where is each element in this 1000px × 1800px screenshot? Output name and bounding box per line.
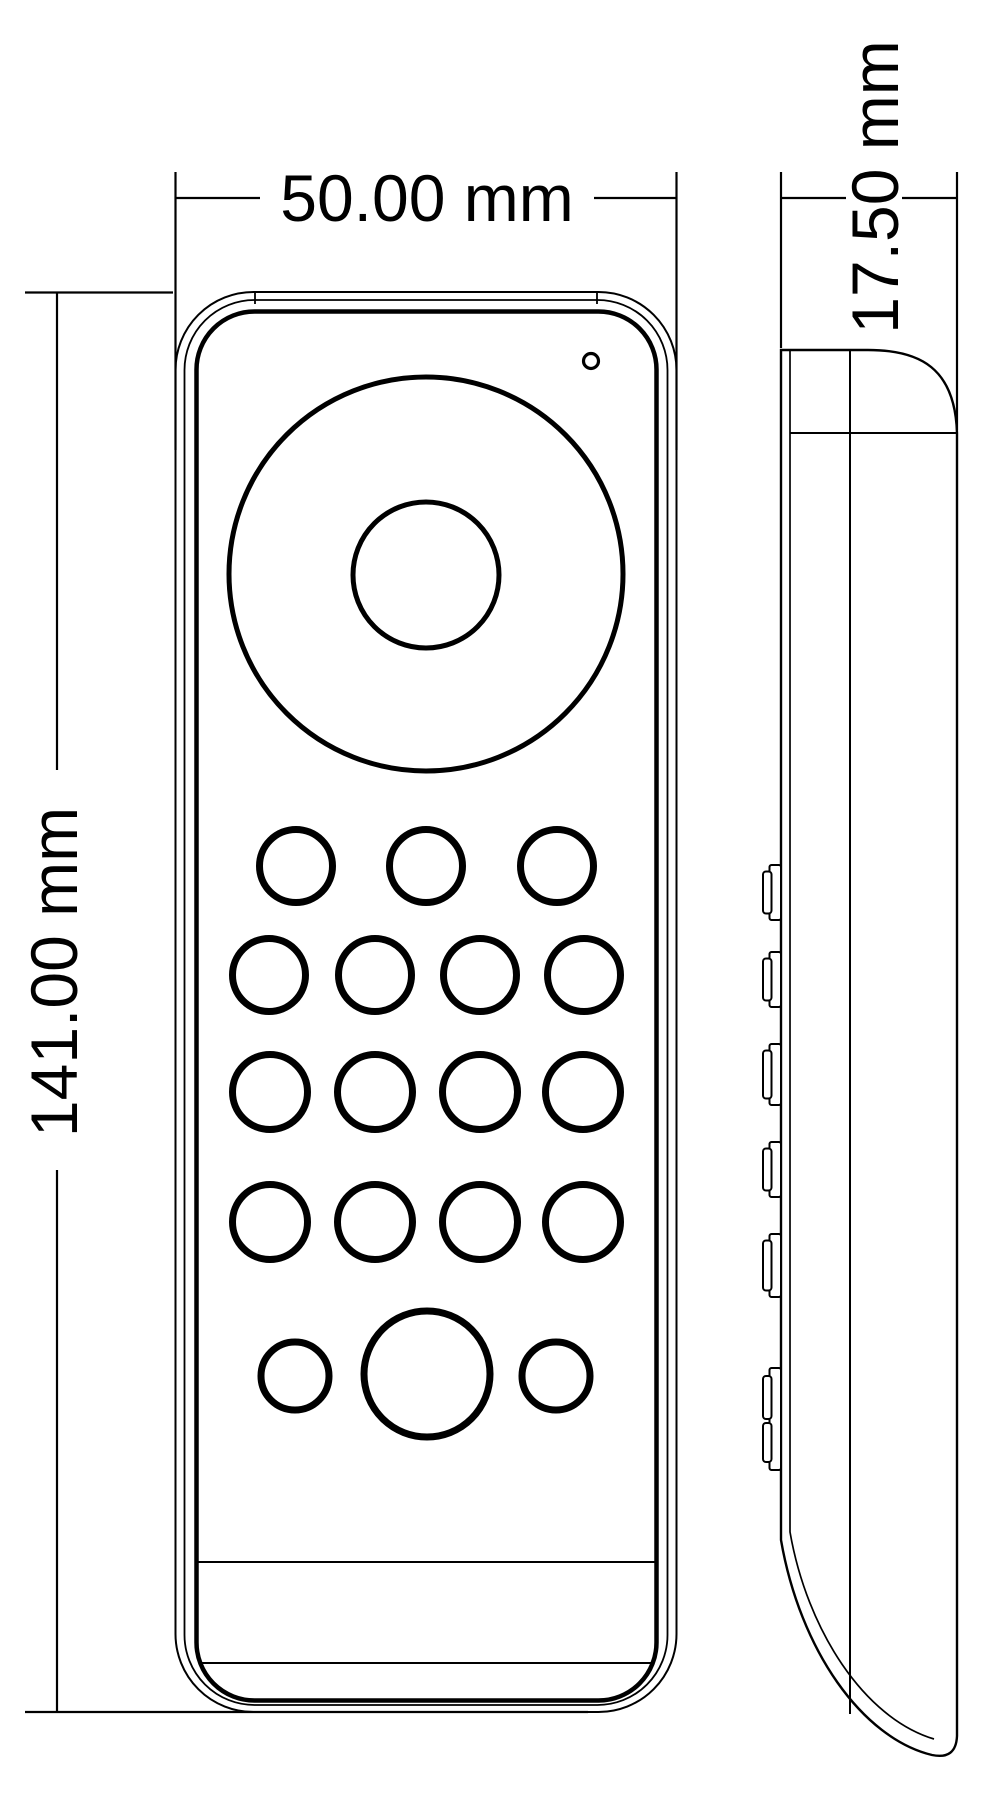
- button: [390, 830, 463, 903]
- side-view: [763, 350, 957, 1756]
- button: [548, 939, 621, 1012]
- side-button-bump: [763, 865, 781, 920]
- front-face-outline: [197, 312, 657, 1701]
- side-buttons: [763, 865, 781, 1470]
- button: [443, 1185, 518, 1260]
- button: [546, 1055, 621, 1130]
- side-button-bump: [763, 952, 781, 1007]
- button: [338, 1185, 413, 1260]
- button-row-1: [260, 830, 594, 903]
- drawing-canvas: 50.00 mm 141.00 mm 17.50 mm: [0, 0, 1000, 1800]
- button-row-2: [233, 939, 621, 1012]
- depth-dimension-label: 17.50 mm: [838, 40, 912, 333]
- button-row-3: [233, 1055, 621, 1130]
- dial-center-button: [353, 502, 499, 648]
- dimension-width: 50.00 mm: [176, 161, 677, 450]
- button-small: [522, 1342, 590, 1410]
- button: [260, 830, 333, 903]
- side-button-bump-double: [763, 1368, 781, 1470]
- button-row-5: [261, 1311, 590, 1437]
- side-button-bump: [763, 1142, 781, 1197]
- side-outer-profile: [781, 350, 957, 1756]
- side-button-bump: [763, 1044, 781, 1105]
- button: [338, 1055, 413, 1130]
- front-view: [176, 292, 677, 1712]
- top-chamfer-ticks: [255, 292, 597, 304]
- dial-ring: [229, 377, 623, 771]
- button: [339, 939, 412, 1012]
- button: [444, 939, 517, 1012]
- remote-dimension-drawing: 50.00 mm 141.00 mm 17.50 mm: [0, 0, 1000, 1800]
- button: [233, 1185, 308, 1260]
- button: [521, 830, 594, 903]
- side-button-bump: [763, 1234, 781, 1297]
- button: [443, 1055, 518, 1130]
- height-dimension-label: 141.00 mm: [17, 807, 91, 1137]
- button-large: [364, 1311, 490, 1437]
- led-indicator: [584, 354, 599, 369]
- button-small: [261, 1342, 329, 1410]
- button: [546, 1185, 621, 1260]
- front-outer-contour: [176, 292, 677, 1712]
- button: [233, 939, 306, 1012]
- button-row-4: [233, 1185, 621, 1260]
- width-dimension-label: 50.00 mm: [280, 161, 573, 235]
- button: [233, 1055, 308, 1130]
- front-mid-contour: [185, 300, 668, 1705]
